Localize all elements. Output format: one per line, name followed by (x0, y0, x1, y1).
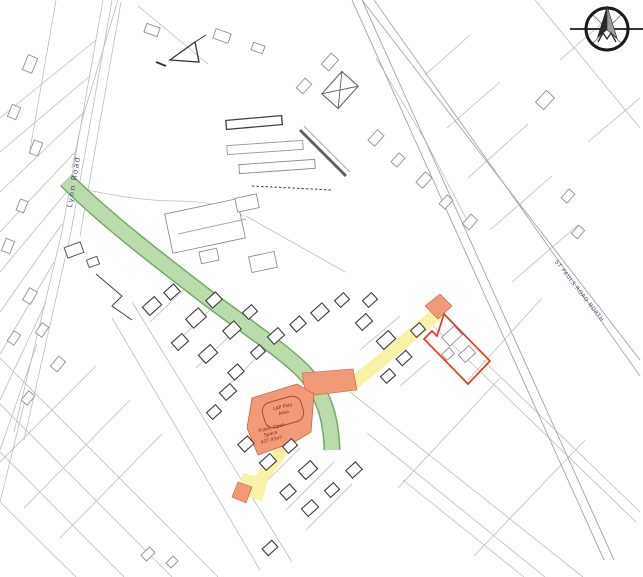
site-buildings (442, 326, 476, 363)
parcel-lines (0, 0, 640, 577)
compass-north-icon (570, 6, 643, 50)
cross-roof-building (322, 71, 358, 108)
east-street-edge (362, 0, 614, 560)
public-open-space-area (247, 384, 314, 455)
st-pauls-road-north-label: ST PAULS ROAD NORTH (553, 260, 605, 324)
road-lines (352, 0, 640, 560)
school-buildings (165, 194, 278, 273)
site-plan-map: Lynn Road ST PAULS ROAD NORTH LAP Play A… (0, 0, 643, 577)
field-structures (80, 35, 350, 320)
map-canvas: Lynn Road ST PAULS ROAD NORTH LAP Play A… (0, 0, 643, 577)
existing-buildings (1, 23, 584, 568)
dashed-fence-line (252, 186, 332, 190)
